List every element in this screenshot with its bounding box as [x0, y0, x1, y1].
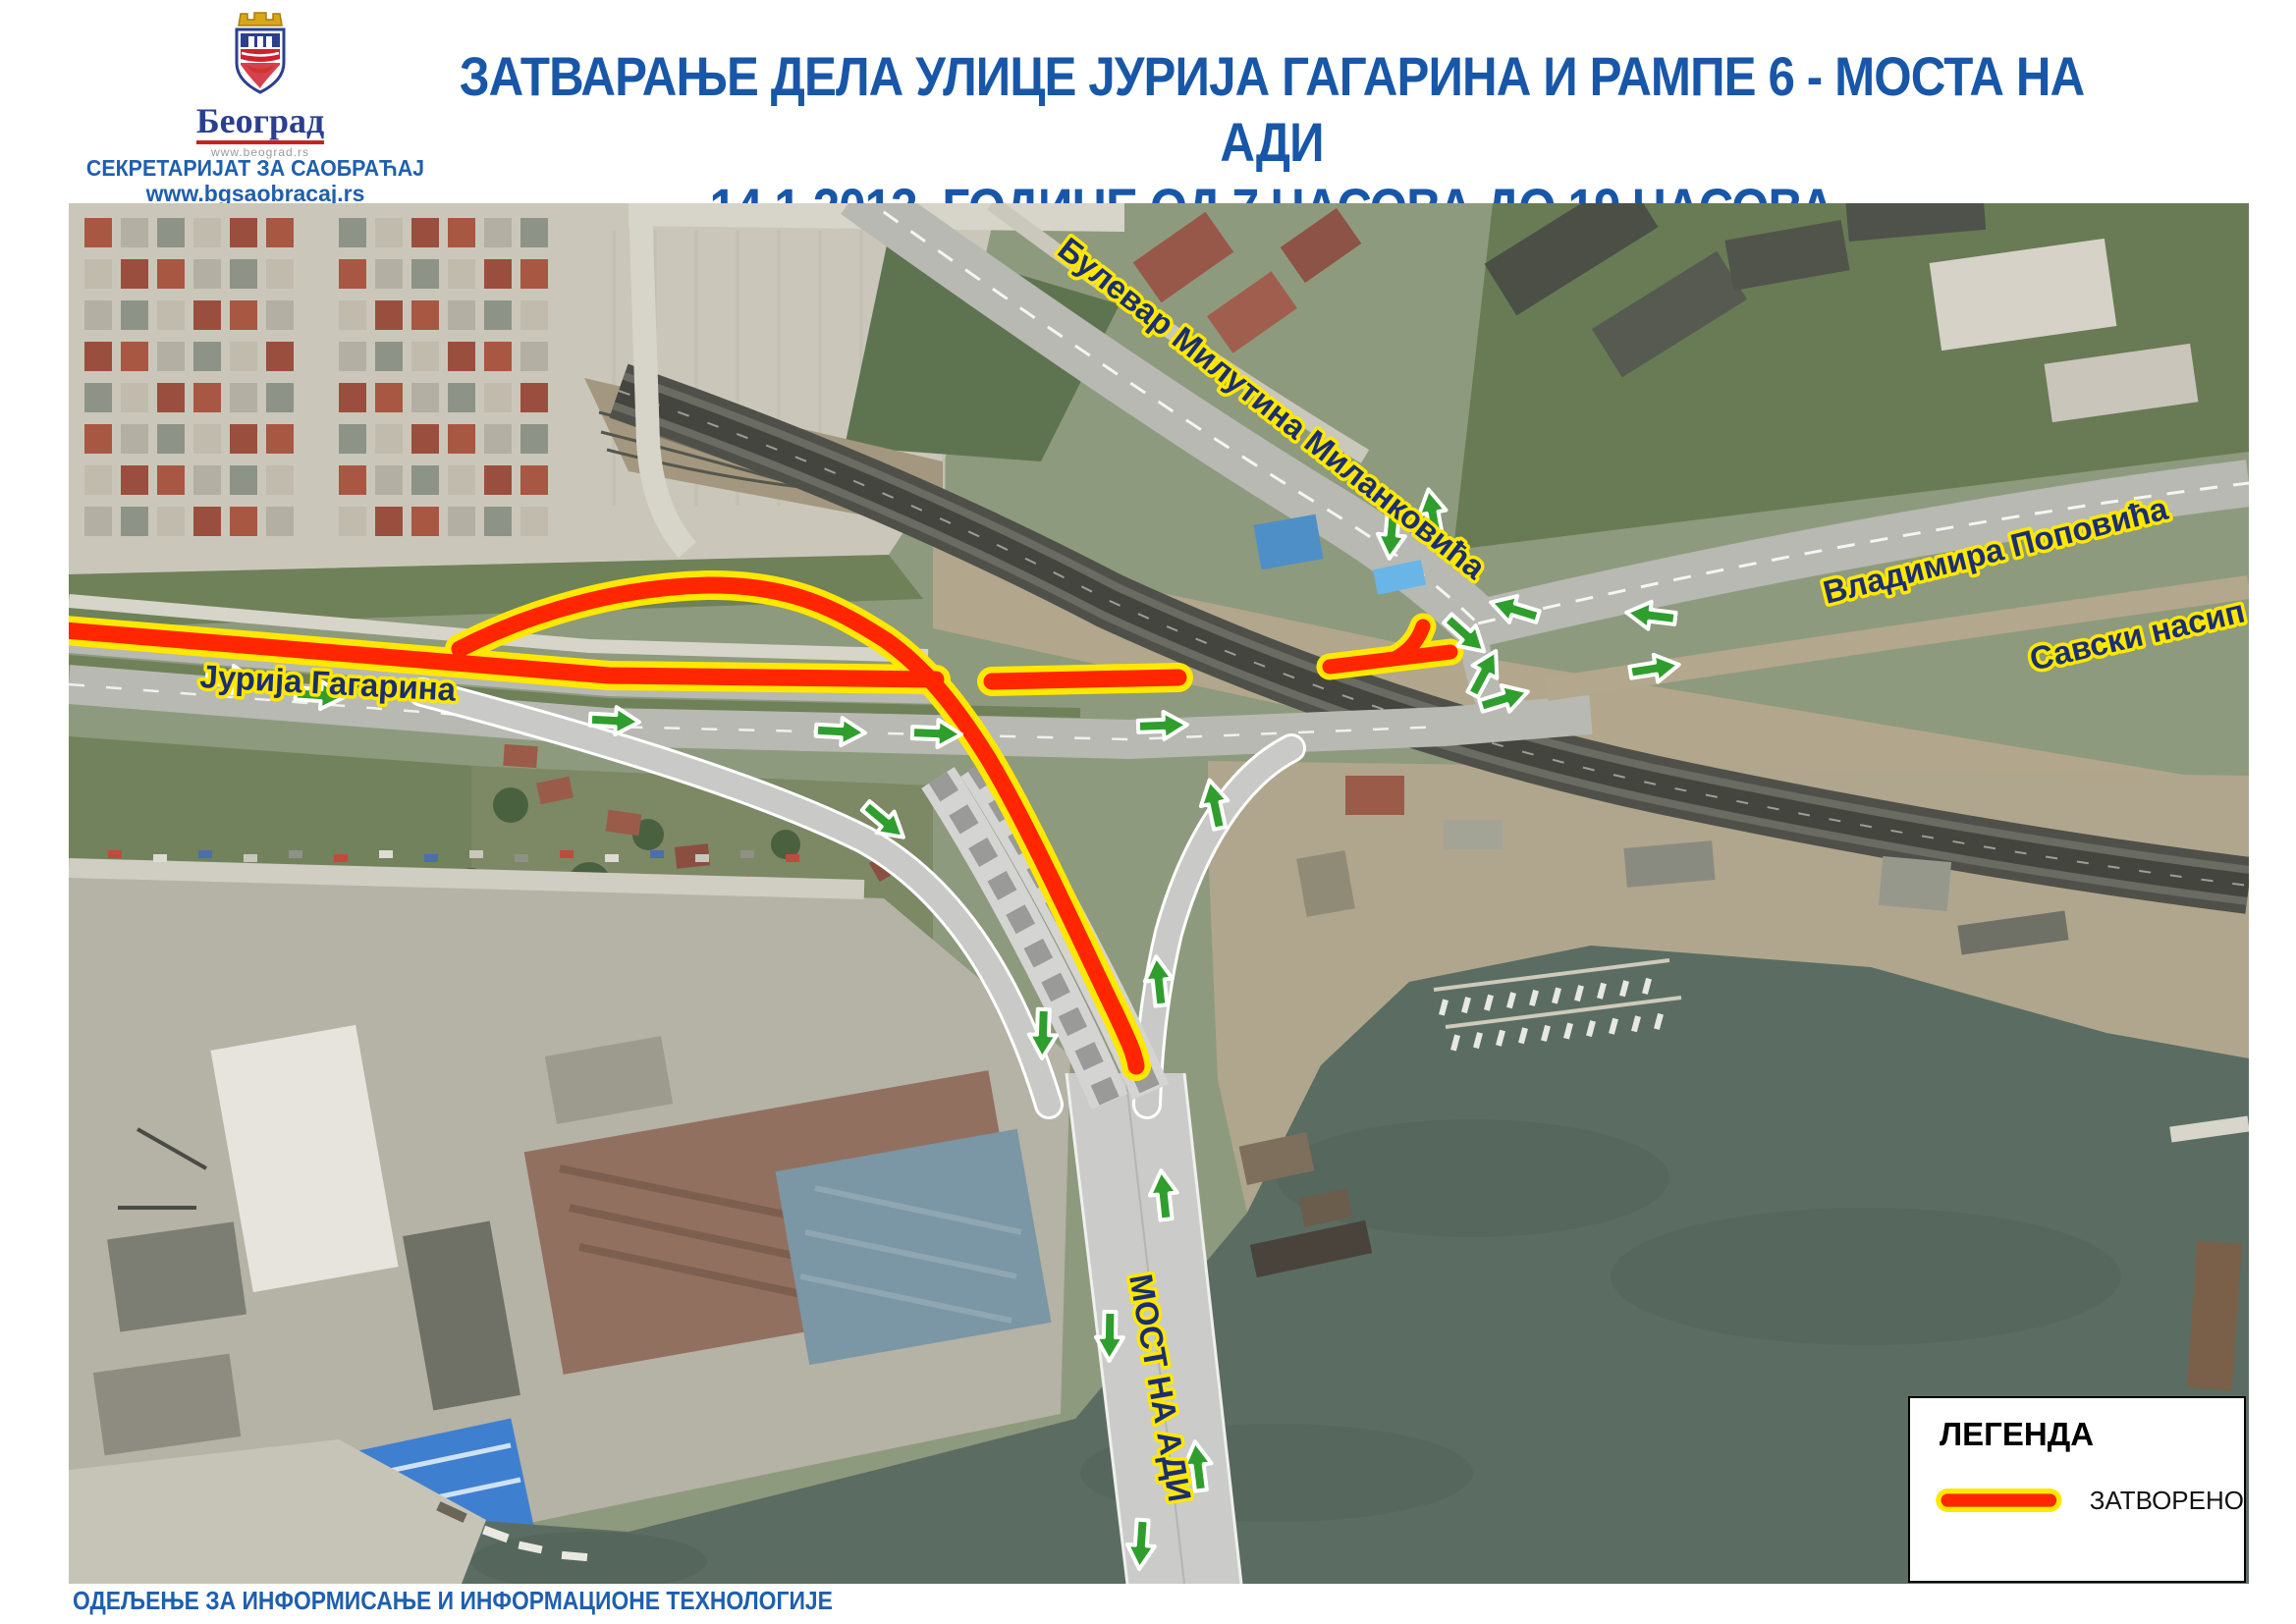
logo-city-name: Београд	[187, 103, 334, 138]
legend-title: ЛЕГЕНДА	[1940, 1416, 2244, 1453]
belgrade-logo: Београд www.beograd.rs	[187, 8, 334, 159]
legend-item-label: ЗАТВОРЕНО	[2090, 1486, 2244, 1516]
closed-line-icon	[1934, 1481, 2064, 1520]
aerial-map: Јурија ГагаринаБулевар Милутина Миланков…	[69, 203, 2249, 1584]
title-line-1: ЗАТВАРАЊЕ ДЕЛА УЛИЦЕ ЈУРИЈА ГАГАРИНА И Р…	[438, 43, 2105, 175]
legend-item-closed: ЗАТВОРЕНО	[1934, 1481, 2244, 1520]
jurija-gagarina-closed-east	[992, 677, 1178, 681]
logo-underline	[196, 140, 324, 144]
legend-panel: ЛЕГЕНДА ЗАТВОРЕНО	[1908, 1396, 2246, 1583]
map-canvas: Јурија ГагаринаБулевар Милутина Миланков…	[69, 203, 2249, 1584]
traffic-closure-poster: Београд www.beograd.rs СЕКРЕТАРИЈАТ ЗА С…	[0, 0, 2296, 1624]
department-caption: ОДЕЉЕЊЕ ЗА ИНФОРМИСАЊЕ И ИНФОРМАЦИОНЕ ТЕ…	[73, 1586, 833, 1616]
belgrade-coat-of-arms-icon	[211, 8, 309, 98]
secretariat-name: СЕКРЕТАРИЈАТ ЗА САОБРАЋАЈ	[59, 155, 452, 182]
